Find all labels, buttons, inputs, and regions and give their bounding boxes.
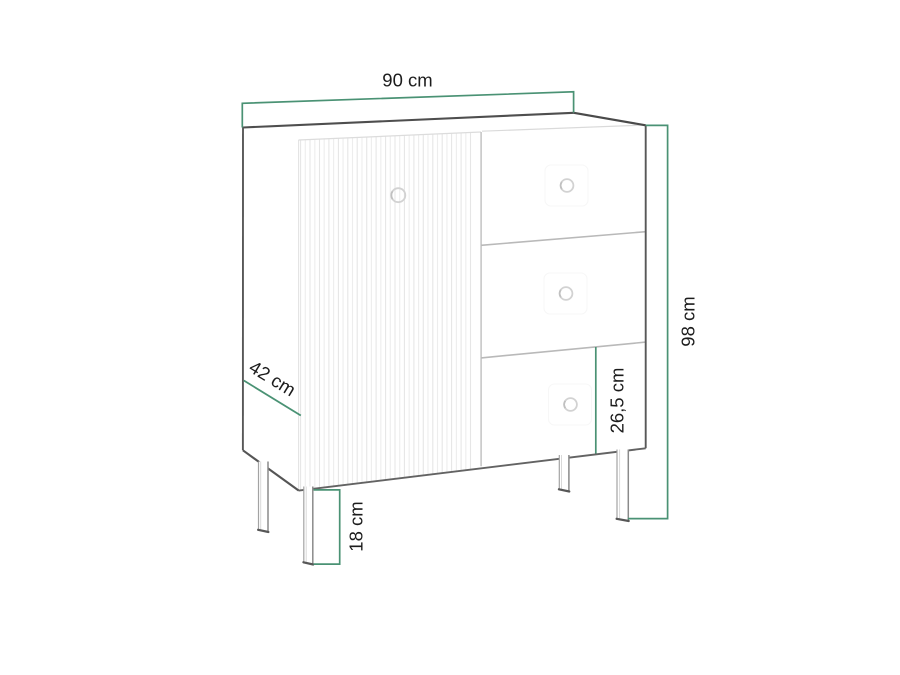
svg-text:90 cm: 90 cm <box>382 70 432 91</box>
svg-text:42 cm: 42 cm <box>246 356 300 400</box>
svg-text:98 cm: 98 cm <box>678 296 699 346</box>
svg-text:18 cm: 18 cm <box>346 501 367 551</box>
svg-text:26,5 cm: 26,5 cm <box>607 368 628 434</box>
